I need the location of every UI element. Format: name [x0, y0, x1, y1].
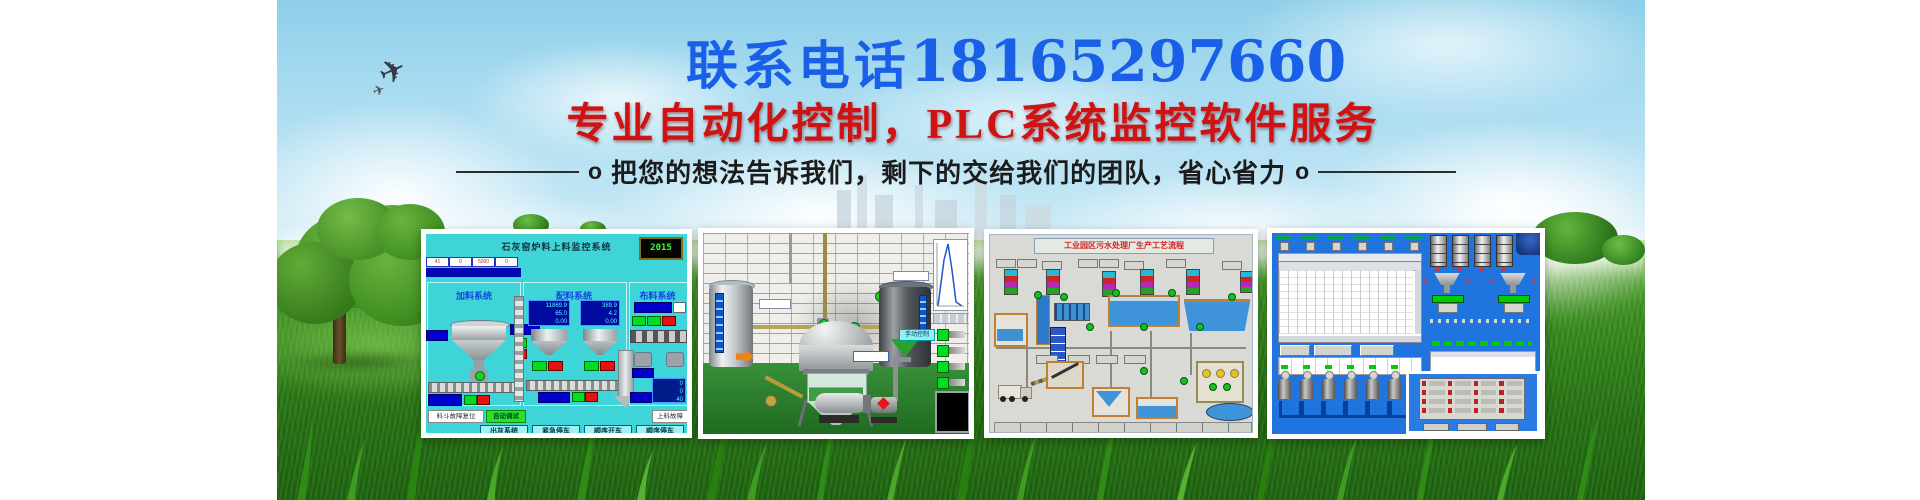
mini-tag: [1380, 236, 1396, 240]
flow-label: [1124, 355, 1146, 364]
tagline-text: 把您的想法告诉我们，剩下的交给我们的团队，省心省力: [611, 153, 1286, 190]
run-indicator: [464, 395, 477, 405]
run-indicator: [584, 361, 599, 371]
stop-indicator: [585, 392, 598, 402]
bottom-status-bar[interactable]: [994, 422, 1252, 433]
alarm-dot-column: [1499, 381, 1503, 417]
mini-tag: [1354, 236, 1370, 240]
manual-control-label: 手动控制: [899, 329, 935, 341]
valve-dot: [1140, 323, 1148, 331]
mixer-canister: [1388, 379, 1401, 399]
clarifier-ellipse: [1206, 403, 1253, 421]
bush: [1602, 235, 1645, 265]
flow-label: [1017, 259, 1037, 268]
water-column: [1036, 295, 1050, 345]
mini-tag: [1406, 236, 1422, 240]
report-strip: [1430, 351, 1536, 373]
black-display: [935, 391, 969, 433]
batch-value: 0.00: [529, 318, 567, 326]
trend-line: [934, 240, 967, 310]
flow-label: [1096, 355, 1118, 364]
valve-dot: [1228, 293, 1236, 301]
dialog-button[interactable]: [1423, 423, 1449, 431]
reset-button[interactable]: 料斗故障复位: [428, 410, 484, 423]
p1-input-box: [673, 302, 686, 313]
p1-label-box: [630, 392, 652, 403]
pump-flange: [863, 395, 871, 413]
pipe: [789, 233, 792, 283]
corner-logo: [1516, 233, 1540, 255]
tag-label: [759, 299, 791, 309]
p1-label-box: [426, 330, 448, 341]
silo-body: [583, 329, 617, 341]
basin-low: [1136, 397, 1178, 419]
screenshot-lime-kiln-hmi[interactable]: 石灰窑炉料上料监控系统 2015 41 0 5000 0 加料系统 配料系统 布…: [421, 229, 692, 438]
hopper-box: [1438, 303, 1458, 313]
phone-label: 联系电话: [686, 38, 910, 96]
batch-value: 389.9: [581, 302, 617, 310]
sequence-start-button[interactable]: 顺序开车: [584, 425, 632, 433]
conveyor: [428, 382, 520, 393]
p1-navy-bar: [426, 268, 521, 277]
mixer-pipe: [1279, 401, 1302, 418]
hopper-status: [1498, 295, 1530, 303]
p2-screen: 手动控制: [703, 233, 969, 434]
screenshot-batching-hmi[interactable]: ✕ ✕ ✕ ✕ ✕ ✕ ✕: [1267, 228, 1545, 439]
mixer-unit: [1322, 365, 1342, 433]
strip-cell: 0: [449, 257, 472, 267]
basin-rim: [1184, 299, 1250, 302]
mixer-unit: [1278, 365, 1298, 433]
p1-label-box: [538, 392, 570, 403]
mini-device: [1332, 242, 1341, 251]
indicator-slot: [949, 363, 965, 370]
strip-cell: 5000: [472, 257, 495, 267]
p1-label-box: [632, 368, 654, 378]
tree-shadow: [283, 350, 435, 374]
hopper-stem: [1510, 285, 1516, 293]
flow-label: [1078, 259, 1098, 268]
status-stack: [1140, 269, 1154, 295]
conveyor: [526, 380, 624, 391]
aeration-basin: [1054, 303, 1090, 321]
valve: [666, 352, 684, 367]
unit-lamp: [1216, 369, 1225, 378]
hopper-box: [1504, 303, 1524, 313]
pipe-line: [996, 347, 1246, 349]
alarm-dot-column: [1474, 381, 1478, 417]
mixer-valve: [1347, 365, 1354, 369]
mixer-valve: [1281, 365, 1288, 369]
batch-value: 65.0: [529, 310, 567, 318]
tagline-rule-right: [1318, 171, 1456, 173]
mini-device: [1280, 242, 1289, 251]
batch-display-a: 11869.9 65.0 0.00: [528, 300, 570, 326]
tank-water: [997, 329, 1023, 341]
mixer-unit: [1366, 365, 1386, 433]
valve-dot: [1112, 289, 1120, 297]
toolbar-button[interactable]: [1360, 345, 1394, 356]
run-indicator: [647, 316, 661, 326]
indicator-button[interactable]: [937, 361, 949, 373]
valve-dot: [1196, 323, 1204, 331]
status-dashes: [1432, 341, 1532, 346]
mixer-valve: [1325, 365, 1332, 369]
mini-tag: [1276, 236, 1292, 240]
fault-label: 上料故障: [652, 410, 687, 423]
valve-dot: [1209, 383, 1217, 391]
valve-dot: [1060, 293, 1068, 301]
dialog-button[interactable]: [1495, 423, 1519, 431]
mixer-canister: [1344, 379, 1357, 399]
valve-handle: [765, 395, 777, 407]
run-indicator: [632, 316, 646, 326]
pump-base: [871, 417, 897, 423]
alarm-bar-column: [1507, 381, 1522, 417]
run-indicator: [572, 392, 585, 402]
clarifier-basin: [1184, 302, 1250, 331]
trend-chart: [933, 239, 968, 311]
phone-line[interactable]: 联系电话18165297660: [516, 24, 1516, 99]
mini-device: [1384, 242, 1393, 251]
unit-lamp: [1202, 369, 1211, 378]
mini-device: [1306, 242, 1315, 251]
batch-value: 0.00: [581, 318, 617, 326]
alarm-dot-column: [1422, 381, 1426, 417]
chart-toolbar[interactable]: [933, 313, 968, 324]
status-stack: [1186, 269, 1200, 295]
valve-dot: [1034, 291, 1042, 299]
p1-label-box: [428, 394, 462, 406]
unit-lamp: [1230, 369, 1239, 378]
tag-label: [893, 271, 929, 281]
mini-device: [1410, 242, 1419, 251]
pipe: [823, 233, 827, 325]
screenshot-tank-room-hmi[interactable]: 手动控制: [698, 228, 974, 439]
hero-banner: ✈ ✈ 联系电话18165297660 专业自动化控制，PLC系统监控软件服务 …: [0, 0, 1920, 500]
alarm-dialog: [1419, 378, 1525, 420]
valve-light: [475, 371, 485, 381]
fail-x-icon: ✕: [1464, 277, 1472, 286]
silo: [1474, 235, 1491, 267]
indicator-slot: [949, 347, 965, 354]
status-stack: [1004, 269, 1018, 295]
dotted-conveyor: [1430, 319, 1534, 323]
mixer-valve: [1391, 365, 1398, 369]
mini-icon-strip: [1276, 235, 1426, 249]
status-stack: [1240, 271, 1253, 293]
batch-value: 4.2: [581, 310, 617, 318]
indicator-slot: [949, 379, 965, 386]
indicator-button[interactable]: [937, 345, 949, 357]
headline: 专业自动化控制，PLC系统监控软件服务: [473, 90, 1473, 151]
pipe: [893, 361, 898, 401]
stop-indicator: [548, 361, 563, 371]
pipe-line: [1190, 333, 1192, 375]
flow-label: [1166, 259, 1186, 268]
tagline-bullet-right: o: [1295, 158, 1309, 185]
batch-display-b: 389.9 4.2 0.00: [580, 300, 620, 326]
valve-dot: [1086, 323, 1094, 331]
fail-x-icon: ✕: [1488, 277, 1496, 286]
p1-section-label: 加料系统: [434, 289, 514, 302]
silo: [1430, 235, 1447, 267]
status-stack: [1046, 269, 1060, 295]
mini-device: [1358, 242, 1367, 251]
hopper-body: [452, 326, 506, 340]
screenshot-sewage-plant-flow[interactable]: 工业园区污水处理厂生产工艺流程: [984, 229, 1258, 438]
p3-header: 工业园区污水处理厂生产工艺流程: [1034, 238, 1214, 254]
right-display: 0 0 40: [652, 378, 686, 403]
tagline-bullet-left: o: [588, 158, 602, 185]
batch-value: 11869.9: [529, 302, 567, 310]
stop-indicator: [662, 316, 676, 326]
indicator-slot: [949, 331, 965, 338]
p1-section-label: 布料系统: [630, 289, 685, 302]
phone-number[interactable]: 18165297660: [910, 28, 1346, 95]
tag-label: [853, 351, 889, 362]
chain-conveyor: [630, 330, 687, 343]
right-value: 0: [653, 388, 683, 396]
alarm-bar-column: [1455, 381, 1470, 417]
mixer-valve: [1369, 365, 1376, 369]
p1-screen: 石灰窑炉料上料监控系统 2015 41 0 5000 0 加料系统 配料系统 布…: [426, 234, 687, 433]
alarm-bar-column: [1481, 381, 1496, 417]
tagline: o 把您的想法告诉我们，剩下的交给我们的团队，省心省力 o: [456, 153, 1456, 190]
p1-led-display: 2015: [639, 237, 683, 260]
emergency-stop-button[interactable]: 紧急停车: [532, 425, 580, 433]
truck-wheel: [1000, 396, 1006, 402]
mixer-unit: [1388, 365, 1408, 433]
data-grid[interactable]: [1278, 261, 1422, 343]
indicator-button[interactable]: [937, 329, 949, 341]
truck-wheel: [1009, 396, 1015, 402]
mixer-canister: [1366, 379, 1379, 399]
mixer-pipe: [1323, 401, 1346, 418]
mixer-valve: [1303, 365, 1310, 369]
stop-indicator: [600, 361, 615, 371]
strip-cell: 41: [426, 257, 449, 267]
pipe-line: [1150, 331, 1152, 401]
alarm-bar-column: [1429, 381, 1444, 417]
fail-x-icon: ✕: [1530, 277, 1538, 286]
toolbar-button[interactable]: [1280, 345, 1310, 356]
weigh-hopper: [1498, 273, 1528, 285]
hopper-stem: [1444, 285, 1450, 293]
grid-lines: [1279, 270, 1413, 334]
alarm-dot-column: [1448, 381, 1452, 417]
right-value: 40: [653, 396, 683, 404]
flow-label: [996, 259, 1016, 268]
toolbar-button[interactable]: [1314, 345, 1352, 356]
valve: [634, 352, 652, 367]
ash-system-button[interactable]: 出灰系统: [480, 425, 528, 433]
strip-cell: 0: [495, 257, 518, 267]
indicator-button[interactable]: [937, 377, 949, 389]
valve-dot: [1223, 383, 1231, 391]
fail-x-icon: ✕: [1422, 277, 1430, 286]
p3-screen: 工业园区污水处理厂生产工艺流程: [989, 234, 1253, 433]
mixer-canister: [1300, 379, 1313, 399]
pump-base: [819, 415, 859, 423]
valve-dot: [1168, 289, 1176, 297]
mixer-unit: [1300, 365, 1320, 433]
mixer-pipe: [1345, 401, 1368, 418]
level-gauge: [715, 293, 724, 353]
mixer-canister: [1278, 379, 1291, 399]
mixer-canister: [1322, 379, 1335, 399]
stop-indicator: [477, 395, 490, 405]
p1-label-box: [634, 302, 672, 313]
mixer-unit: [1344, 365, 1364, 433]
mini-tag: [1302, 236, 1318, 240]
process-unit: [1196, 361, 1244, 403]
p4-screen: ✕ ✕ ✕ ✕ ✕ ✕ ✕: [1272, 233, 1540, 434]
silo-body: [531, 329, 567, 341]
silo: [1496, 235, 1513, 267]
flow-label: [1222, 261, 1242, 270]
pump-body: [815, 393, 867, 413]
mixer-pipe: [1367, 401, 1390, 418]
valve-dot: [1180, 377, 1188, 385]
sequence-stop-button[interactable]: 顺序停车: [636, 425, 684, 433]
fail-x-icon: ✕: [1478, 266, 1486, 275]
alarm-window: [1406, 371, 1540, 434]
truck-wheel: [1022, 396, 1028, 402]
grid-vscrollbar[interactable]: [1415, 270, 1421, 334]
valve-dot: [1140, 367, 1148, 375]
p1-value-strip: 41 0 5000 0: [426, 257, 518, 267]
silo: [1452, 235, 1469, 267]
hopper-status: [1432, 295, 1464, 303]
bucket-elevator: [514, 296, 524, 402]
flow-label: [1099, 259, 1119, 268]
auto-debug-button[interactable]: 自动调试: [486, 410, 526, 423]
run-indicator: [532, 361, 547, 371]
dialog-button[interactable]: [1457, 423, 1487, 431]
right-value: 0: [653, 380, 683, 388]
mini-tag: [1328, 236, 1344, 240]
hopper-stem: [474, 360, 484, 369]
tagline-rule-left: [456, 171, 579, 173]
grid-hscrollbar[interactable]: [1279, 336, 1421, 342]
weigh-hopper: [1432, 273, 1462, 285]
mixer-pipe: [1301, 401, 1324, 418]
